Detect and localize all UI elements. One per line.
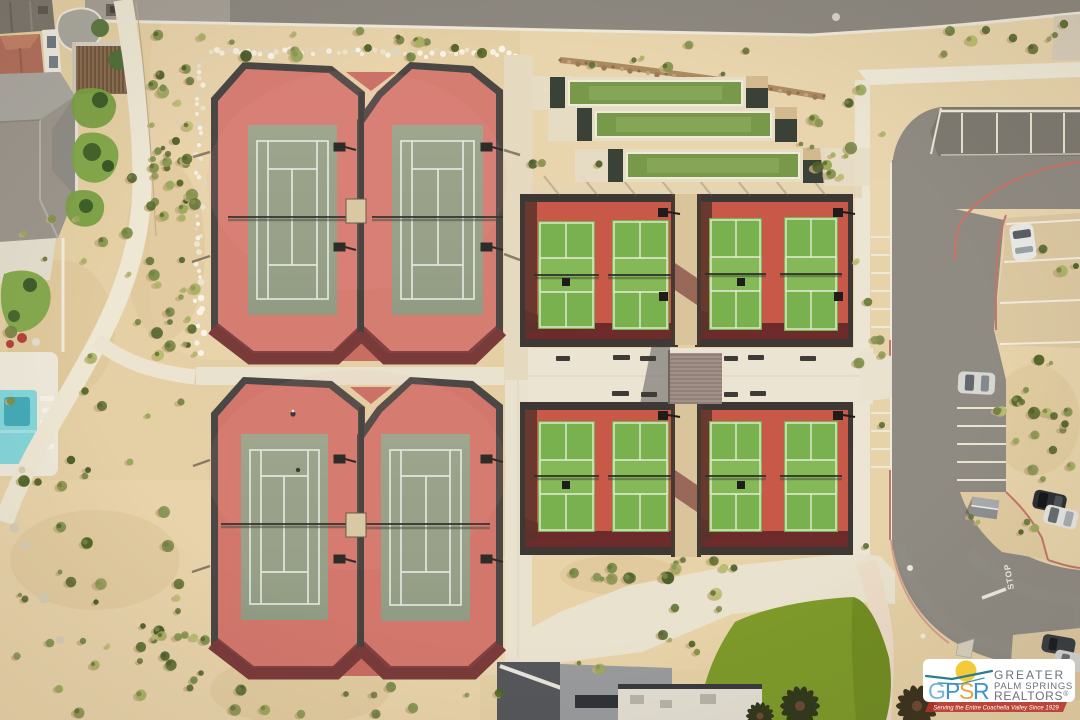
svg-text:GREATER: GREATER bbox=[994, 668, 1065, 682]
svg-text:G: G bbox=[928, 678, 946, 704]
svg-text:REALTORS®: REALTORS® bbox=[994, 689, 1069, 703]
svg-text:Serving the Entire Coachella V: Serving the Entire Coachella Valley Sinc… bbox=[933, 706, 1059, 712]
svg-text:R: R bbox=[973, 678, 990, 704]
